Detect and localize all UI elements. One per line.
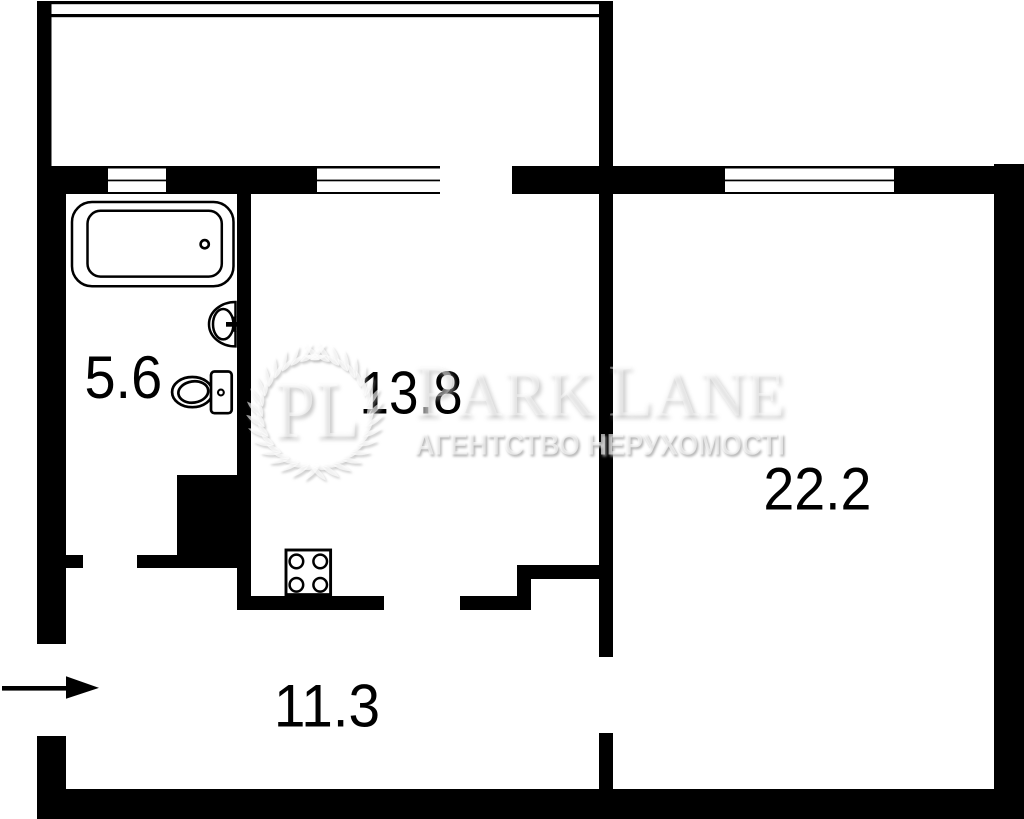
svg-text:11.3: 11.3 xyxy=(274,673,380,740)
svg-text:5.6: 5.6 xyxy=(84,345,162,411)
svg-text:PARK: PARK xyxy=(414,351,595,433)
svg-text:АГЕНТСТВО НЕРУХОМОСТІ: АГЕНТСТВО НЕРУХОМОСТІ xyxy=(415,428,785,461)
svg-text:PL: PL xyxy=(274,364,359,454)
svg-text:22.2: 22.2 xyxy=(763,457,871,523)
svg-text:LANE: LANE xyxy=(608,351,785,433)
